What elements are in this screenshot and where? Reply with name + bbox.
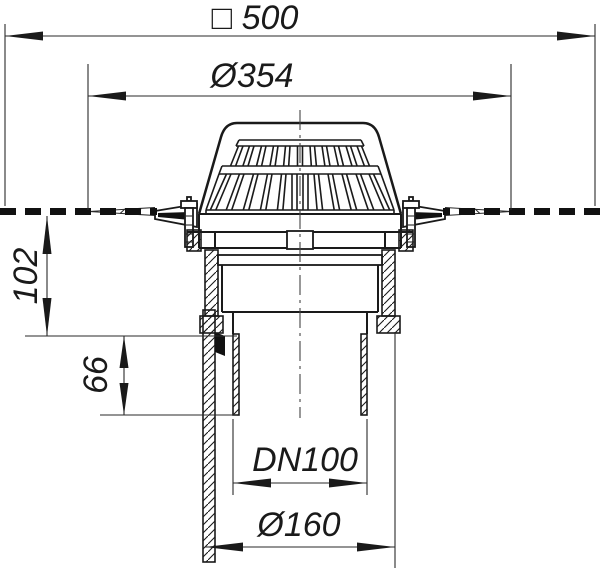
clamping-flange-left: [89, 197, 197, 247]
dim-label-flange-diameter: Ø354: [209, 57, 293, 95]
dim-label-install-height: 102: [7, 248, 45, 305]
technical-drawing-svg: □ 500 Ø354 102 66 DN100: [0, 0, 600, 569]
dim-label-overall-width: □ 500: [212, 0, 299, 37]
dimension-nominal-diameter: DN100: [233, 419, 367, 495]
technical-drawing-page: □ 500 Ø354 102 66 DN100: [0, 0, 600, 569]
dimension-overall-width: □ 500: [5, 0, 595, 206]
sealing-sleeve: [203, 310, 225, 562]
clamping-flange-right: [403, 197, 511, 247]
dim-label-spigot-length: 66: [77, 356, 115, 394]
dim-label-nominal-diameter: DN100: [252, 441, 358, 479]
dim-label-outlet-diameter: Ø160: [256, 506, 340, 544]
